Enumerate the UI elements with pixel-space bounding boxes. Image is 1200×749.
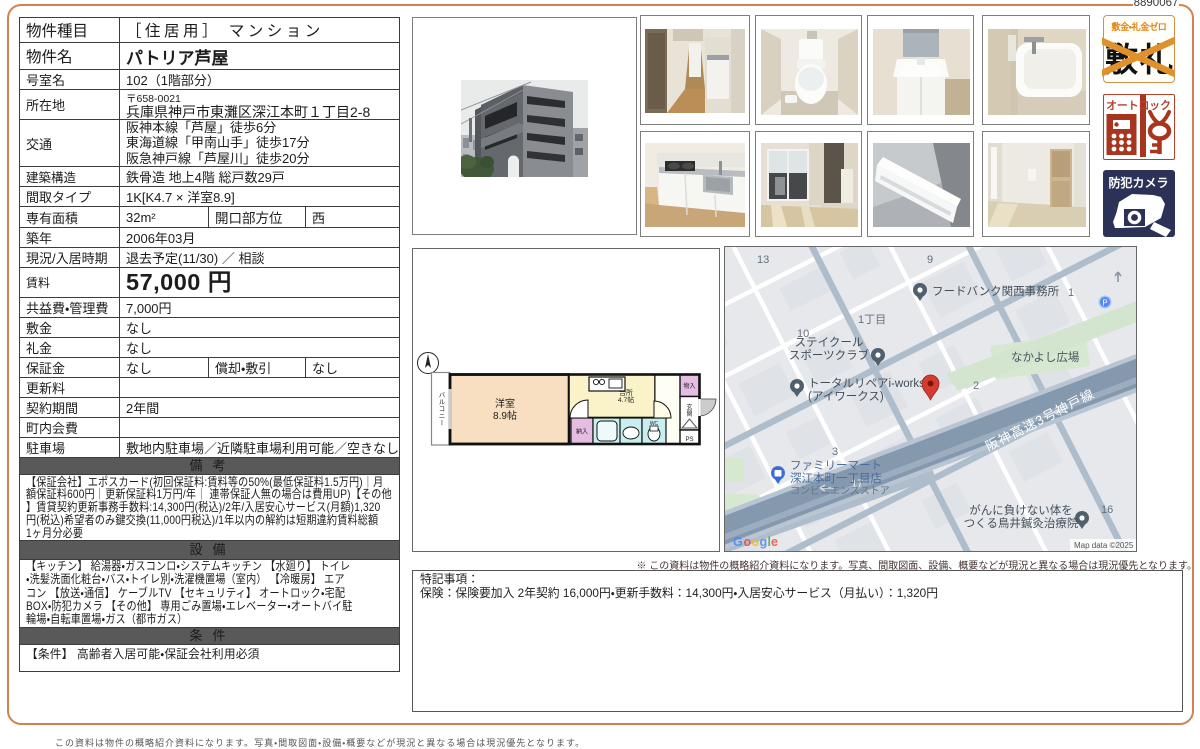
svg-text:13: 13: [757, 254, 769, 266]
svg-text:e: e: [771, 535, 778, 549]
svg-text:(アイワークス): (アイワークス): [808, 390, 884, 403]
svg-text:フードバンク関西事務所: フードバンク関西事務所: [932, 284, 1060, 298]
svg-text:9: 9: [927, 254, 933, 266]
svg-text:つくる鳥井鍼灸治療院: つくる鳥井鍼灸治療院: [963, 516, 1078, 530]
svg-text:4.7帖: 4.7帖: [618, 395, 634, 404]
svg-text:16: 16: [1101, 504, 1113, 516]
svg-text:PS: PS: [685, 437, 693, 443]
svg-text:3: 3: [832, 446, 838, 458]
svg-text:なかよし広場: なかよし広場: [1011, 351, 1080, 364]
svg-text:納入: 納入: [576, 428, 588, 436]
svg-text:g: g: [759, 535, 767, 549]
svg-text:8.9帖: 8.9帖: [493, 409, 517, 422]
svg-text:コンビニエンスストア: コンビニエンスストア: [790, 485, 890, 497]
svg-text:1: 1: [1068, 287, 1074, 299]
svg-text:深江本町一丁目店: 深江本町一丁目店: [790, 471, 882, 485]
svg-text:スポーツクラブ: スポーツクラブ: [789, 348, 870, 362]
svg-text:洋室: 洋室: [495, 397, 515, 410]
svg-text:1丁目: 1丁目: [858, 314, 886, 326]
svg-text:G: G: [733, 535, 743, 549]
svg-text:Map data ©2025: Map data ©2025: [1074, 541, 1134, 550]
svg-text:o: o: [751, 535, 759, 549]
svg-text:2: 2: [973, 380, 979, 392]
svg-text:物入: 物入: [683, 382, 695, 390]
svg-text:関: 関: [686, 411, 692, 418]
svg-text:ステイクール: ステイクール: [794, 336, 863, 349]
svg-text:がんに負けない体を: がんに負けない体を: [969, 503, 1073, 517]
svg-text:P: P: [1102, 298, 1107, 307]
svg-text:o: o: [743, 535, 751, 549]
svg-text:ファミリーマート: ファミリーマート: [790, 460, 882, 472]
svg-text:トータルリペアi-works: トータルリペアi-works: [808, 377, 925, 390]
svg-text:玄: 玄: [686, 403, 692, 411]
